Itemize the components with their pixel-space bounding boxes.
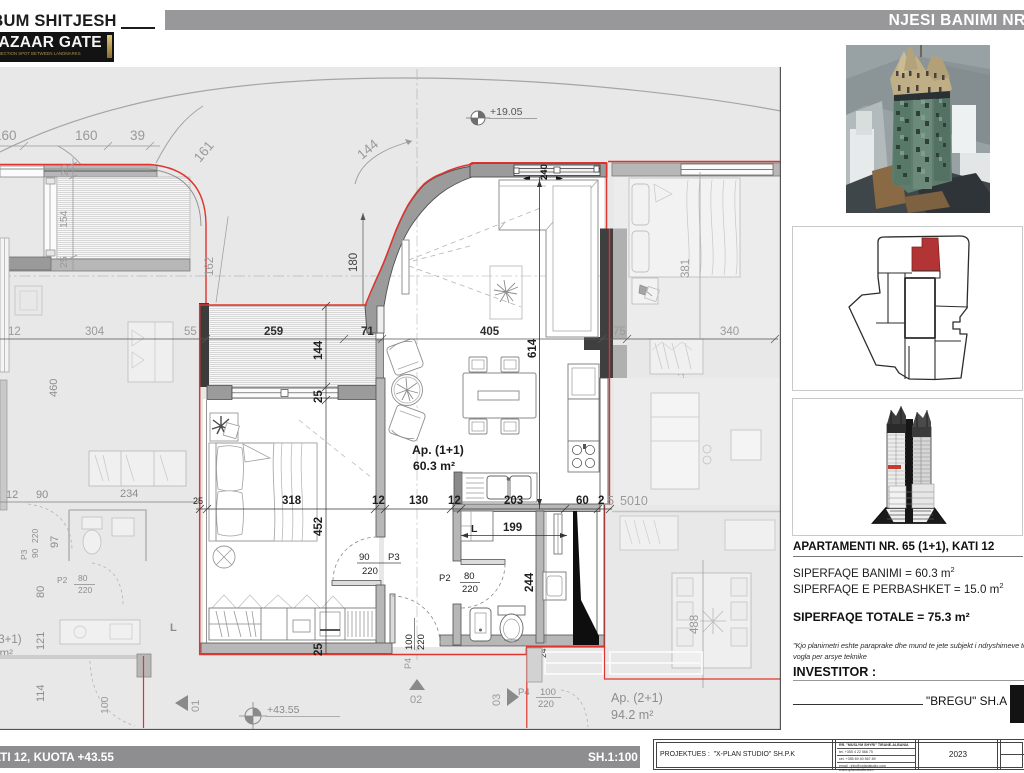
- svg-text:03: 03: [491, 694, 503, 706]
- svg-text:100: 100: [404, 634, 415, 650]
- svg-text:460: 460: [48, 379, 60, 397]
- svg-text:25: 25: [313, 390, 325, 403]
- svg-text:12: 12: [448, 495, 461, 507]
- svg-text:304: 304: [85, 326, 105, 338]
- svg-text:55: 55: [184, 326, 197, 338]
- svg-text:80: 80: [464, 571, 475, 582]
- svg-text:160: 160: [75, 128, 98, 143]
- svg-text:244: 244: [524, 572, 536, 592]
- svg-text:452: 452: [313, 517, 325, 536]
- svg-text:203: 203: [504, 495, 523, 507]
- svg-text:60: 60: [576, 495, 589, 507]
- svg-text:90: 90: [36, 489, 48, 501]
- svg-text:240: 240: [539, 164, 550, 180]
- svg-text:+19.05: +19.05: [490, 106, 523, 118]
- svg-text:5: 5: [607, 494, 614, 508]
- svg-text:220: 220: [462, 584, 478, 595]
- svg-text:100: 100: [540, 687, 556, 698]
- svg-text:199: 199: [503, 522, 522, 534]
- svg-text:Ap. (1+1): Ap. (1+1): [412, 443, 464, 457]
- svg-text:162: 162: [204, 257, 216, 276]
- svg-text:25: 25: [193, 496, 203, 506]
- svg-text:2: 2: [598, 495, 604, 507]
- svg-text:220: 220: [362, 566, 378, 577]
- svg-text:25: 25: [58, 256, 70, 268]
- svg-text:80: 80: [35, 586, 47, 598]
- svg-text:488: 488: [689, 615, 701, 634]
- svg-text:154: 154: [58, 210, 70, 228]
- svg-text:259: 259: [264, 326, 283, 338]
- svg-text:220: 220: [416, 634, 427, 650]
- svg-text:P2: P2: [439, 573, 451, 584]
- svg-text:180: 180: [348, 253, 360, 272]
- svg-text:97: 97: [49, 536, 61, 548]
- svg-text:02: 02: [410, 694, 422, 706]
- svg-text:130: 130: [409, 495, 428, 507]
- svg-text:Ap. (3+1): Ap. (3+1): [0, 634, 22, 646]
- svg-text:P2: P2: [57, 575, 68, 585]
- svg-text:25: 25: [313, 643, 325, 656]
- svg-text:220: 220: [538, 699, 554, 710]
- svg-text:318: 318: [282, 495, 302, 507]
- svg-text:L: L: [170, 622, 177, 634]
- svg-text:381: 381: [680, 259, 692, 278]
- svg-text:39: 39: [130, 128, 145, 143]
- svg-text:Ap. (2+1): Ap. (2+1): [611, 691, 663, 705]
- svg-text:160: 160: [0, 128, 17, 143]
- svg-text:12: 12: [372, 495, 385, 507]
- svg-text:P4: P4: [518, 687, 530, 698]
- svg-text:220: 220: [30, 529, 40, 543]
- svg-text:121: 121: [35, 632, 47, 650]
- svg-text:94.2 m²: 94.2 m²: [611, 708, 653, 722]
- svg-text:5010: 5010: [620, 494, 648, 508]
- svg-text:405: 405: [480, 326, 500, 338]
- svg-text:20: 20: [59, 164, 71, 176]
- svg-text:L: L: [471, 523, 478, 535]
- svg-text:100: 100: [99, 696, 111, 714]
- svg-text:80: 80: [78, 573, 88, 583]
- svg-text:340: 340: [720, 326, 739, 338]
- svg-text:12: 12: [6, 489, 18, 501]
- svg-text:60.3 m²: 60.3 m²: [413, 459, 455, 473]
- svg-text:90: 90: [30, 548, 40, 558]
- svg-text:114: 114: [35, 684, 47, 702]
- svg-text:P3: P3: [388, 552, 400, 563]
- svg-text:01: 01: [190, 700, 202, 712]
- svg-text:71: 71: [361, 326, 374, 338]
- svg-text:+43.55: +43.55: [267, 704, 300, 716]
- svg-text:P3: P3: [19, 549, 29, 560]
- svg-text:12: 12: [8, 326, 21, 338]
- svg-text:614: 614: [527, 338, 539, 358]
- svg-text:P4: P4: [403, 658, 413, 669]
- svg-text:234: 234: [120, 488, 138, 500]
- svg-text:144: 144: [313, 340, 325, 360]
- svg-text:90: 90: [359, 552, 370, 563]
- svg-text:220: 220: [78, 585, 92, 595]
- svg-text:75: 75: [613, 326, 626, 338]
